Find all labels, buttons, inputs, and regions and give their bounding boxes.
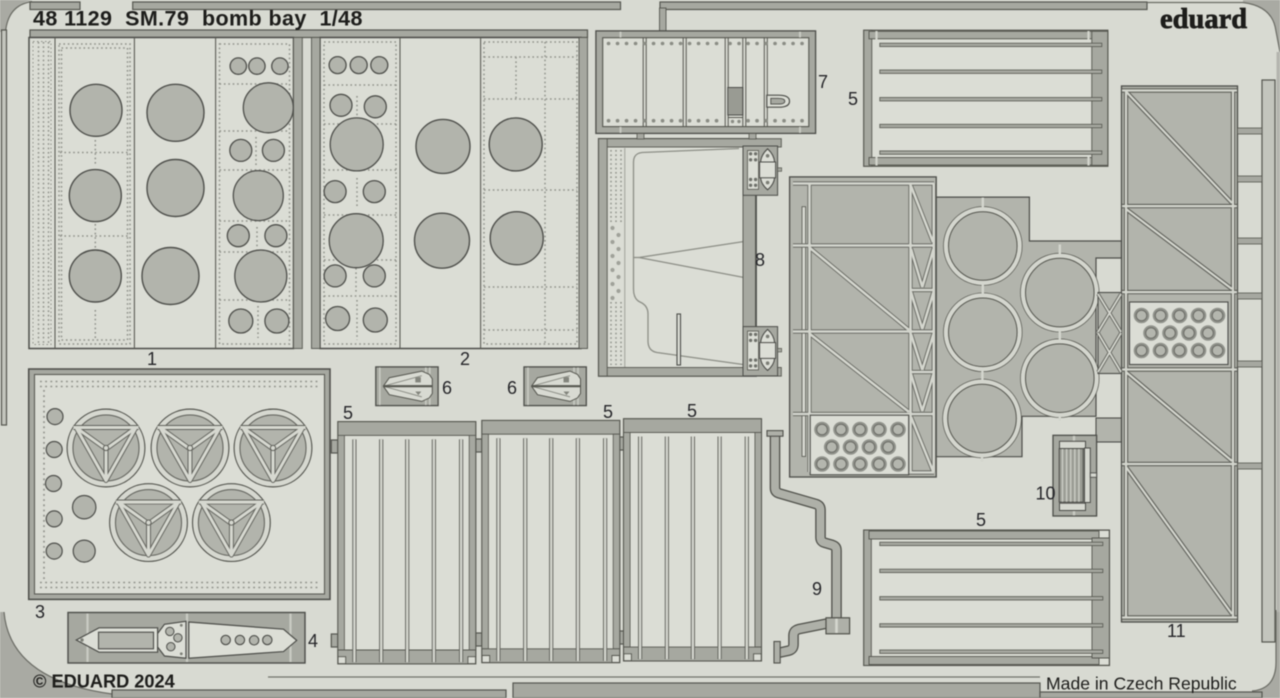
svg-text:8: 8 [755, 250, 765, 270]
svg-text:48 1129 SM.79 bomb bay 1/48: 48 1129 SM.79 bomb bay 1/48 [33, 7, 363, 31]
svg-text:Made in Czech Republic: Made in Czech Republic [1046, 674, 1237, 694]
svg-text:2: 2 [460, 349, 470, 369]
svg-text:© EDUARD 2024: © EDUARD 2024 [33, 672, 176, 692]
svg-text:5: 5 [687, 401, 697, 421]
svg-text:10: 10 [1036, 484, 1056, 504]
svg-text:11: 11 [1167, 621, 1186, 641]
svg-text:6: 6 [442, 378, 452, 398]
svg-text:6: 6 [507, 378, 517, 398]
svg-text:9: 9 [812, 579, 822, 599]
svg-text:5: 5 [343, 403, 353, 423]
svg-text:3: 3 [35, 602, 45, 622]
svg-text:eduard: eduard [1160, 4, 1247, 35]
svg-text:1: 1 [147, 349, 157, 369]
svg-text:7: 7 [818, 72, 828, 92]
svg-text:5: 5 [848, 89, 858, 109]
svg-text:5: 5 [976, 510, 986, 530]
svg-text:4: 4 [308, 631, 318, 651]
svg-text:5: 5 [603, 402, 613, 422]
